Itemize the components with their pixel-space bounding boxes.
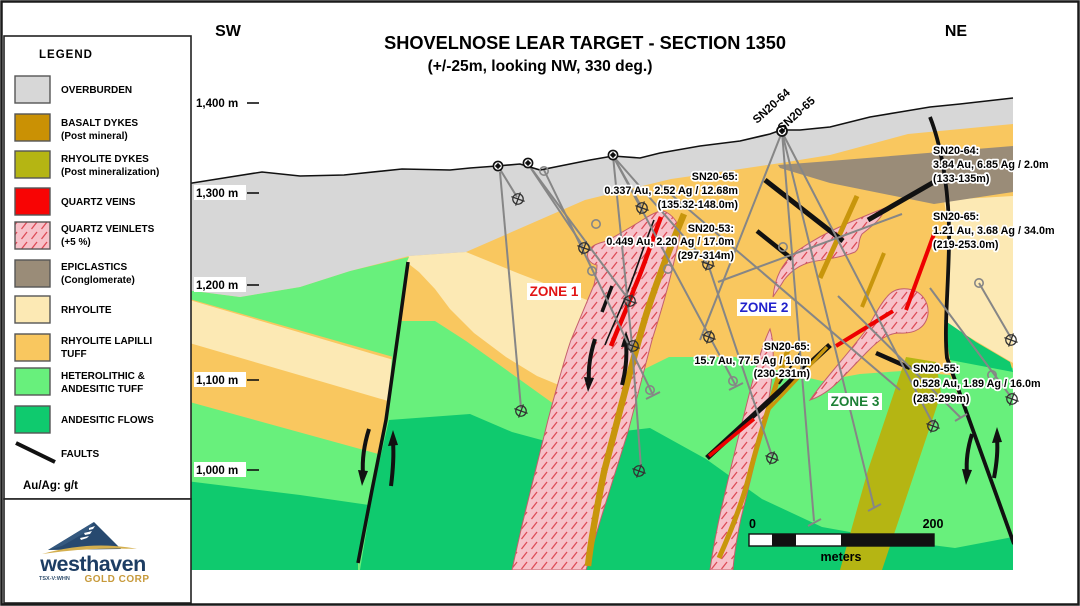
svg-text:3.84 Au, 6.85 Ag / 2.0m: 3.84 Au, 6.85 Ag / 2.0m	[933, 159, 1049, 171]
svg-text:QUARTZ VEINLETS: QUARTZ VEINLETS	[61, 224, 155, 235]
svg-text:1,100 m: 1,100 m	[196, 375, 238, 387]
svg-text:SHOVELNOSE LEAR TARGET - SECTI: SHOVELNOSE LEAR TARGET - SECTION 1350	[384, 33, 786, 53]
svg-text:(Post mineral): (Post mineral)	[61, 131, 128, 142]
svg-text:1,300 m: 1,300 m	[196, 188, 238, 200]
svg-text:15.7 Au, 77.5 Ag / 1.0m: 15.7 Au, 77.5 Ag / 1.0m	[694, 355, 810, 367]
svg-text:(283-299m): (283-299m)	[913, 393, 970, 405]
svg-text:BASALT DYKES: BASALT DYKES	[61, 118, 138, 129]
svg-text:westhaven: westhaven	[39, 552, 145, 576]
svg-text:0.528 Au, 1.89 Ag / 16.0m: 0.528 Au, 1.89 Ag / 16.0m	[913, 378, 1041, 390]
svg-text:1,400 m: 1,400 m	[196, 98, 238, 110]
svg-text:1,000 m: 1,000 m	[196, 465, 238, 477]
svg-text:meters: meters	[821, 550, 862, 564]
svg-text:SN20-65:: SN20-65:	[933, 211, 979, 223]
svg-text:0: 0	[749, 517, 756, 531]
svg-text:LEGEND: LEGEND	[39, 49, 93, 61]
svg-text:SN20-53:: SN20-53:	[688, 223, 734, 235]
svg-text:ZONE 3: ZONE 3	[831, 394, 880, 409]
svg-text:(Conglomerate): (Conglomerate)	[61, 275, 135, 286]
svg-text:200: 200	[923, 517, 944, 531]
svg-text:(+5 %): (+5 %)	[61, 237, 91, 248]
svg-text:(135.32-148.0m): (135.32-148.0m)	[658, 199, 739, 211]
svg-text:Au/Ag: g/t: Au/Ag: g/t	[23, 480, 78, 492]
svg-text:TSX-V:WHN: TSX-V:WHN	[39, 576, 70, 582]
svg-text:RHYOLITE LAPILLI: RHYOLITE LAPILLI	[61, 336, 152, 347]
svg-text:TUFF: TUFF	[61, 349, 87, 360]
svg-text:GOLD CORP: GOLD CORP	[84, 574, 149, 585]
svg-text:SN20-55:: SN20-55:	[913, 363, 959, 375]
svg-text:SN20-64:: SN20-64:	[933, 145, 979, 157]
svg-text:(+/-25m, looking NW, 330 deg.): (+/-25m, looking NW, 330 deg.)	[428, 58, 653, 75]
svg-text:NE: NE	[945, 23, 968, 40]
svg-text:(230-231m): (230-231m)	[754, 368, 811, 380]
svg-text:HETEROLITHIC &: HETEROLITHIC &	[61, 371, 145, 382]
svg-text:(133-135m): (133-135m)	[933, 173, 990, 185]
svg-text:ANDESITIC TUFF: ANDESITIC TUFF	[61, 384, 143, 395]
svg-text:QUARTZ VEINS: QUARTZ VEINS	[61, 197, 136, 208]
svg-text:(Post mineralization): (Post mineralization)	[61, 167, 159, 178]
svg-text:ZONE 2: ZONE 2	[740, 300, 789, 315]
svg-text:1.21 Au, 3.68 Ag / 34.0m: 1.21 Au, 3.68 Ag / 34.0m	[933, 225, 1055, 237]
svg-text:FAULTS: FAULTS	[61, 449, 99, 460]
svg-text:EPICLASTICS: EPICLASTICS	[61, 262, 127, 273]
svg-text:0.449 Au, 2.20 Ag / 17.0m: 0.449 Au, 2.20 Ag / 17.0m	[606, 236, 734, 248]
svg-text:(219-253.0m): (219-253.0m)	[933, 239, 999, 251]
svg-text:SW: SW	[215, 23, 242, 40]
svg-text:ZONE 1: ZONE 1	[530, 284, 579, 299]
svg-text:SN20-65:: SN20-65:	[692, 171, 738, 183]
svg-text:OVERBURDEN: OVERBURDEN	[61, 85, 132, 96]
svg-text:RHYOLITE DYKES: RHYOLITE DYKES	[61, 154, 149, 165]
svg-text:1,200 m: 1,200 m	[196, 280, 238, 292]
svg-text:ANDESITIC FLOWS: ANDESITIC FLOWS	[61, 415, 154, 426]
svg-text:SN20-65:: SN20-65:	[764, 341, 810, 353]
svg-text:(297-314m): (297-314m)	[678, 250, 735, 262]
svg-text:0.337 Au, 2.52 Ag / 12.68m: 0.337 Au, 2.52 Ag / 12.68m	[604, 185, 738, 197]
svg-text:RHYOLITE: RHYOLITE	[61, 305, 112, 316]
